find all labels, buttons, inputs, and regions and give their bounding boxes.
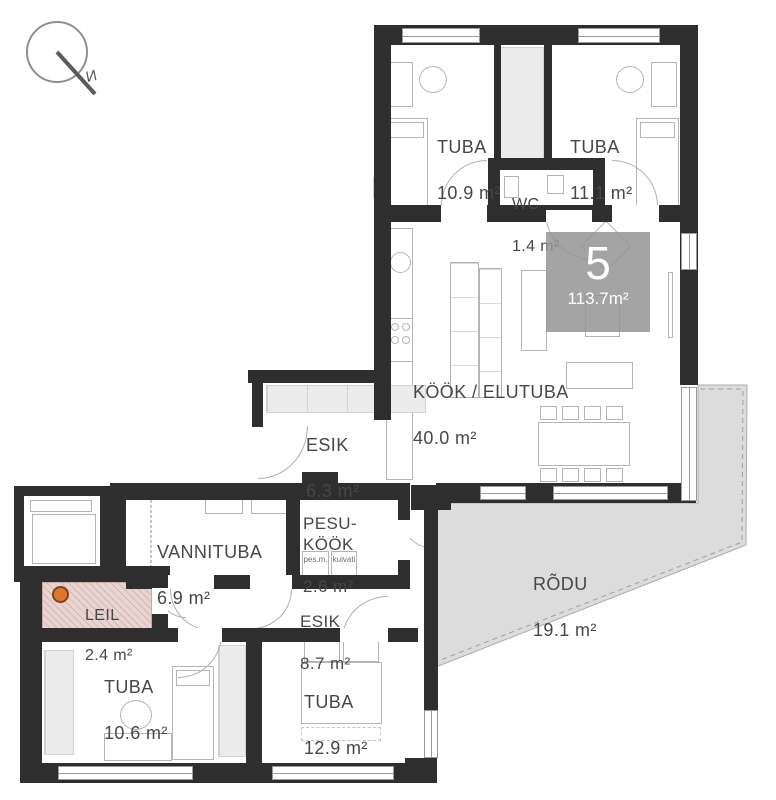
room-label-tuba-a: TUBA 10.9 m² — [437, 113, 501, 228]
room-label-tuba-d: TUBA 12.9 m² — [304, 668, 368, 783]
unit-number: 5 — [546, 237, 650, 289]
room-area: 12.9 m² — [304, 737, 368, 760]
room-name: PESU-KÖÖK — [303, 513, 369, 555]
room-label-vannituba: VANNITUBA 6.9 m² — [157, 518, 262, 633]
room-name: RÕDU — [533, 573, 597, 596]
room-name: KÖÖK / ELUTUBA — [413, 381, 569, 404]
room-name: TUBA — [304, 691, 368, 714]
room-label-rodu: RÕDU 19.1 m² — [533, 550, 597, 665]
room-name: VANNITUBA — [157, 541, 262, 564]
room-area: 19.1 m² — [533, 619, 597, 642]
room-area: 6.9 m² — [157, 587, 262, 610]
floor-plan: N — [0, 0, 776, 800]
room-area: 11.1 m² — [570, 182, 633, 205]
room-label-kook-elutuba: KÖÖK / ELUTUBA 40.0 m² — [413, 358, 569, 473]
room-name: TUBA — [437, 136, 501, 159]
room-area: 10.6 m² — [104, 722, 168, 745]
room-name: ESIK — [300, 611, 351, 632]
room-name: TUBA — [104, 676, 168, 699]
unit-total-area: 113.7m² — [546, 289, 650, 309]
unit-badge: 5 113.7m² — [546, 232, 650, 332]
room-name: LEIL — [85, 606, 133, 626]
room-name: TUBA — [570, 136, 633, 159]
room-name: ESIK — [306, 434, 359, 457]
room-area: 10.9 m² — [437, 182, 501, 205]
room-label-tuba-c: TUBA 10.6 m² — [104, 653, 168, 768]
room-area: 40.0 m² — [413, 427, 569, 450]
room-label-tuba-b: TUBA 11.1 m² — [570, 113, 633, 228]
room-name: WC — [512, 194, 560, 215]
